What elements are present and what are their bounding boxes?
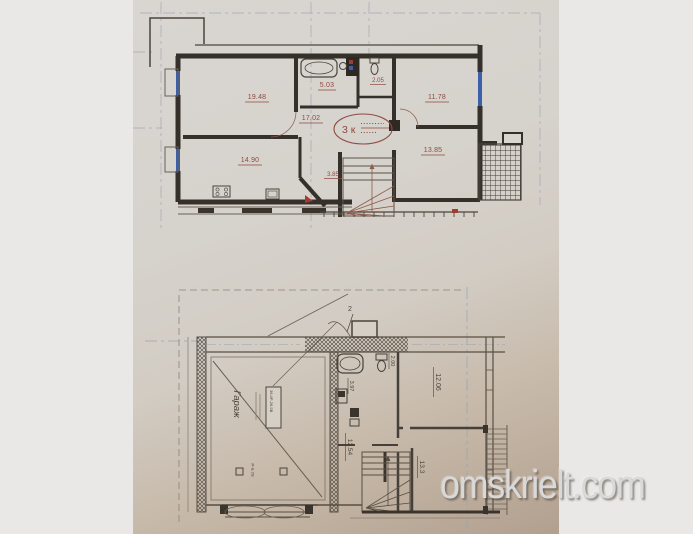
stairs-icon: [362, 452, 410, 512]
dim-lower-room1-text: 12.06: [434, 373, 441, 391]
dim-lower-corridor: 3.97: [348, 378, 354, 394]
garage-diagonal: [213, 361, 322, 497]
porch-strip: [178, 207, 478, 217]
bathtub-icon: [301, 59, 337, 77]
toilet-icon: [370, 58, 379, 75]
dim-lower-wc-text: 2.00: [389, 356, 395, 367]
dim-lower-corridor-text: 3.97: [348, 381, 354, 392]
dim-bedroom: 11.78: [428, 94, 446, 101]
dim-lower-hall: 12.54: [346, 433, 354, 461]
garage-door: [220, 468, 318, 518]
leader-line: [268, 294, 348, 336]
bath-fixtures: [336, 389, 359, 426]
dim-lower-room2-text: 13.3: [418, 461, 425, 474]
screenshot-stage: 19.48 5.03 2.05 11.78 17.02 14.90 13.85 …: [0, 0, 693, 534]
apartment-stamp: 3 к: [334, 114, 392, 144]
blue-utility-mark: [349, 66, 353, 70]
dim-lower-hall-text: 12.54: [346, 439, 353, 456]
upper-floor-plan: 19.48 5.03 2.05 11.78 17.02 14.90 13.85 …: [133, 2, 540, 232]
watermark-text: omskrielt.com: [440, 463, 644, 508]
dim-bath: 5.03: [320, 82, 334, 89]
kitchen-sink-icon: [266, 189, 279, 199]
dim-hall: 17.02: [302, 115, 321, 122]
door-arc: [271, 112, 296, 137]
door-arc: [400, 109, 418, 127]
garage-label: Гараж: [231, 390, 242, 418]
dim-living: 19.48: [248, 94, 267, 101]
bathroom-walls: [338, 352, 398, 512]
dim-lower-room1: 12.06: [434, 367, 442, 397]
red-utility-mark: [349, 60, 353, 64]
note-text: 36.4Р-26.5В: [269, 390, 274, 413]
lower-axis-lines: [145, 287, 467, 530]
door-mark: Р-9.78: [250, 463, 255, 477]
dim-stairs: 3.85: [327, 172, 339, 178]
dim-lower-room2: 13.3: [418, 456, 426, 478]
dim-lower-wc: 2.00: [389, 353, 395, 369]
sink-icon: [340, 63, 347, 70]
stamp-label: 3 к: [342, 124, 356, 136]
stove-icon: [213, 186, 230, 197]
toilet-icon: [376, 354, 387, 372]
bathtub-icon: [337, 354, 363, 373]
level-mark: 2: [348, 306, 352, 313]
door-fill: [389, 120, 400, 131]
entry-porch: [328, 314, 377, 337]
dim-kitchen: 14.90: [241, 157, 260, 164]
floor-plan-drawing: 19.48 5.03 2.05 11.78 17.02 14.90 13.85 …: [0, 0, 693, 534]
dim-wc: 2.05: [372, 78, 384, 84]
dim-room: 13.85: [424, 147, 443, 154]
